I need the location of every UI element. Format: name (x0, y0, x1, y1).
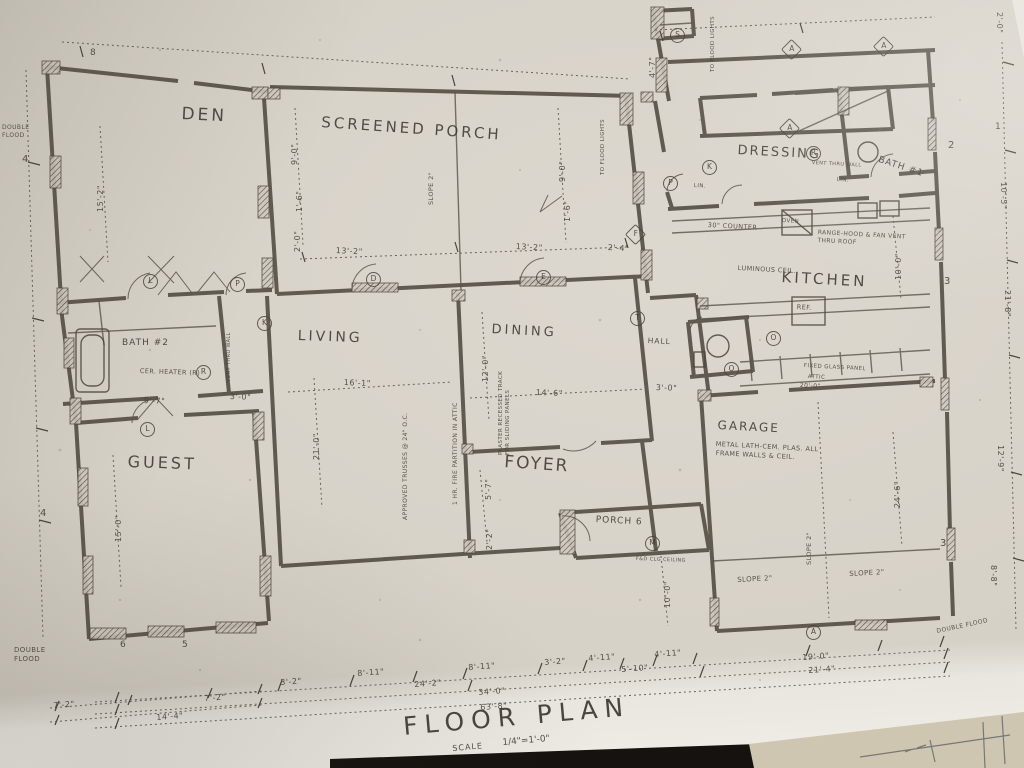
equipment-marker: R (806, 146, 821, 161)
door-marker: L (140, 422, 155, 437)
dim: 9'-7" (144, 396, 166, 406)
dim-porch-depth: 10'-0" (663, 581, 672, 608)
marker: S (670, 28, 685, 43)
room-label-bath2: BATH #2 (122, 338, 169, 348)
dim: 20'-0" (800, 382, 821, 390)
marker: O (724, 362, 739, 377)
note-ref: REF. (797, 303, 812, 312)
dim-right-edge: 8'-8" (989, 565, 998, 586)
dim: 9'-0" (290, 144, 299, 165)
dim: 2'-2" (485, 529, 494, 550)
dim-garage-chain: 19'-0" (802, 651, 830, 662)
marker: A (806, 625, 821, 640)
dim-porch-bay: 13'-2" (516, 242, 543, 252)
note-vent: VENT THRU WALL (226, 332, 232, 382)
section-number: 3 (940, 538, 946, 549)
dim: 5'-7" (484, 479, 493, 500)
marker: K (257, 316, 272, 331)
dim-right-edge: 2'-0" (995, 12, 1004, 33)
door-marker: T (630, 311, 645, 326)
marker: O (766, 331, 781, 346)
dim-garage-chain: 21'-4" (808, 664, 836, 675)
table-shadow (330, 744, 758, 768)
dim-bottom-chain: 4'-11" (588, 652, 616, 663)
dim-hall: 3'-0" (656, 383, 678, 393)
dim: 2'-4" (608, 243, 630, 253)
dim-porch-bay: 13'-2" (336, 246, 363, 256)
dim: 9'-0" (558, 161, 567, 182)
second-sheet (749, 712, 1024, 768)
note-sliding-panels: PLASTER RECESSED TRACK FOR SLIDING PANEL… (498, 370, 512, 455)
note-flood-lights: TO FLOOD LIGHTS (710, 16, 716, 72)
dim-den-width: 15'-2" (96, 185, 105, 212)
dim-left-chain: 7'-2" (53, 700, 75, 710)
dim: 2'-0" (293, 231, 302, 252)
dim-kitchen: 10'-0" (894, 253, 903, 280)
dim-overall-34: 34'-0" (478, 686, 506, 697)
note-oven: OVEN (782, 218, 799, 225)
dim-bottom-chain: 8'-11" (468, 661, 496, 672)
dim-bottom-chain: 24'-2" (414, 678, 442, 689)
room-label-hall: HALL (648, 336, 672, 346)
floor-plan-photo: DEN SCREENED PORCH DRESSING BATH #1 KITC… (0, 0, 1024, 768)
dim-bottom-chain: 4'-11" (654, 648, 682, 659)
note-double-flood: DOUBLE FLOOD (14, 646, 52, 664)
corner-sheet (1012, 0, 1024, 58)
section-number: 4 (22, 154, 28, 165)
dim-bottom-chain: 3'-2" (544, 657, 566, 667)
door-marker: P (230, 277, 245, 292)
dim-left-chain: 7'-2" (204, 693, 226, 703)
dim-bottom-chain: 5'-10" (621, 663, 649, 674)
floor-plan-linework (0, 0, 1024, 768)
note-double-flood: DOUBLE FLOOD (2, 124, 34, 139)
note-fire-partition: 1 HR. FIRE PARTITION IN ATTIC (452, 402, 459, 505)
door-marker: M (645, 536, 660, 551)
dim-guest-depth: 15'-0" (114, 515, 123, 542)
dim-right-edge: 12'-9" (996, 445, 1005, 472)
dim-entry: 4'-7" (648, 57, 657, 78)
section-number: 3 (944, 276, 950, 287)
dim: 1'-6" (295, 191, 304, 212)
dim: 1'-6" (563, 201, 572, 222)
dim-dining-width: 14'-6" (536, 388, 563, 398)
door-marker: E (536, 270, 551, 285)
section-number: 4 (40, 508, 46, 519)
note-slope-porch: SLOPE 2" (427, 172, 435, 205)
section-number: 1 (995, 122, 1001, 132)
note-linen: LIN. (837, 177, 849, 184)
dim-right-edge: 21'-8" (1003, 290, 1012, 317)
note-slope-garage-v: SLOPE 2" (805, 532, 813, 565)
room-label-living: LIVING (297, 328, 362, 346)
door-marker: P (663, 176, 678, 191)
door-marker: D (366, 272, 381, 287)
door-marker: L (143, 274, 158, 289)
room-label-den: DEN (181, 104, 228, 126)
note-flood-lights: TO FLOOD LIGHTS (600, 119, 606, 175)
section-number: 2 (948, 140, 954, 151)
dim-right-edge: 10'-5" (999, 182, 1008, 209)
dim-dining-depth: 12'-0" (481, 355, 490, 382)
dim-garage-depth: 24'-6" (893, 481, 902, 508)
dim-left-chain: 14'-4" (156, 711, 184, 722)
section-number: 6 (120, 640, 126, 650)
equipment-marker: R (196, 365, 211, 380)
dim-living-depth: 21'-0" (312, 433, 321, 460)
dim-living-width: 16'-1" (344, 378, 371, 388)
dim-bottom-chain: 3'-2" (280, 677, 302, 687)
note-linen: LIN. (694, 183, 706, 190)
door-marker: K (702, 160, 717, 175)
dim: 3'-0" (230, 392, 252, 402)
room-label-guest: GUEST (127, 452, 197, 473)
note-attic: ATTIC (808, 374, 826, 381)
note-trusses: APPROVED TRUSSES @ 24" O.C. (402, 413, 409, 520)
section-number: 5 (182, 640, 188, 650)
dim-bottom-chain: 8'-11" (357, 667, 385, 678)
section-number: 8 (90, 48, 96, 58)
